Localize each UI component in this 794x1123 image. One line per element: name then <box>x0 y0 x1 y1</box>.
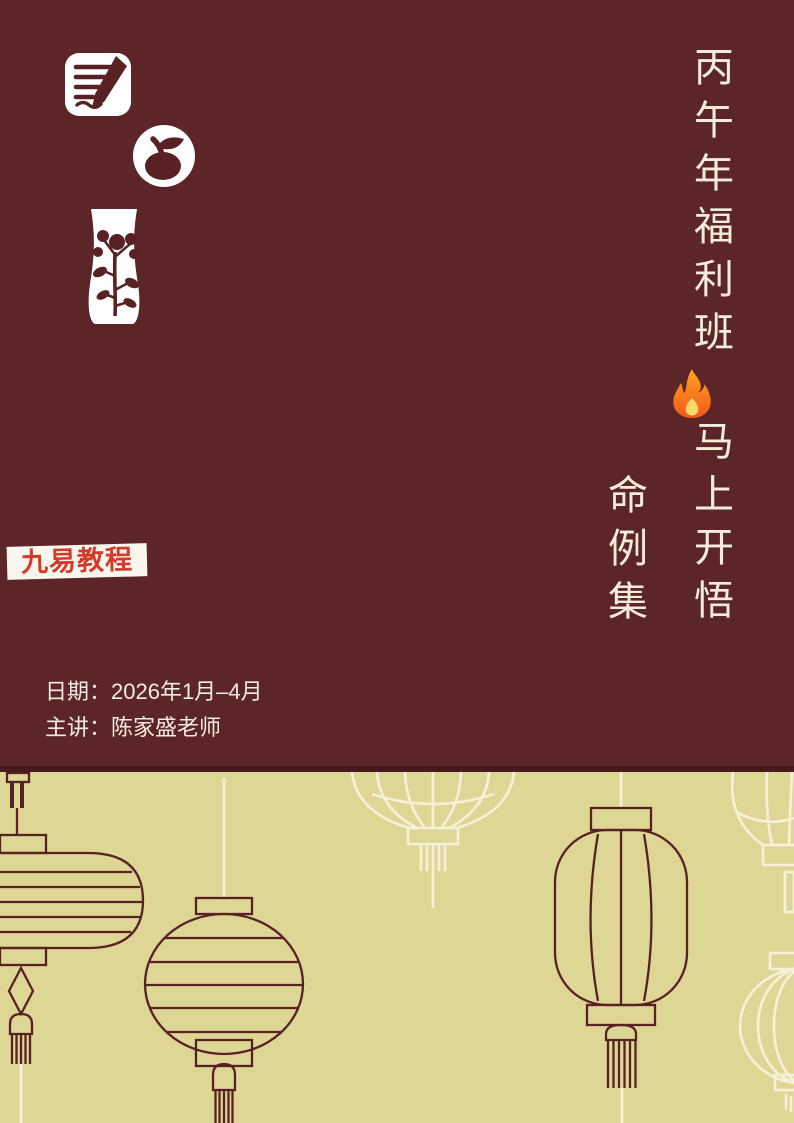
vertical-title-sub: 命例集 <box>595 474 653 633</box>
cover-page: 丙午年福利班 马上开悟 命例集 九易教程 日期：2026年1月–4月 主讲：陈家… <box>0 0 794 1123</box>
cylinder-lantern <box>555 772 687 1123</box>
course-info: 日期：2026年1月–4月 主讲：陈家盛老师 <box>45 674 263 746</box>
vertical-title-main-continued: 马上开悟 <box>681 420 739 632</box>
fire-icon <box>669 368 715 418</box>
speaker-line: 主讲：陈家盛老师 <box>45 710 263 746</box>
fruit-circle-icon <box>132 124 196 188</box>
vertical-title-main: 丙午年福利班 <box>681 46 739 364</box>
lantern-banner <box>0 772 794 1123</box>
notepad-pen-icon <box>64 52 134 118</box>
left-tassel <box>7 773 29 835</box>
brand-badge: 九易教程 <box>7 543 148 580</box>
palace-lantern <box>352 772 514 908</box>
vase-flower-icon <box>84 206 144 328</box>
corner-top-lantern <box>732 772 794 912</box>
lantern-pattern <box>0 772 794 1123</box>
cover-top-section: 丙午年福利班 马上开悟 命例集 九易教程 日期：2026年1月–4月 主讲：陈家… <box>0 0 794 766</box>
round-lantern <box>145 778 303 1123</box>
corner-round-lantern <box>740 953 794 1112</box>
date-line: 日期：2026年1月–4月 <box>45 674 263 710</box>
capsule-lantern <box>0 835 143 1123</box>
